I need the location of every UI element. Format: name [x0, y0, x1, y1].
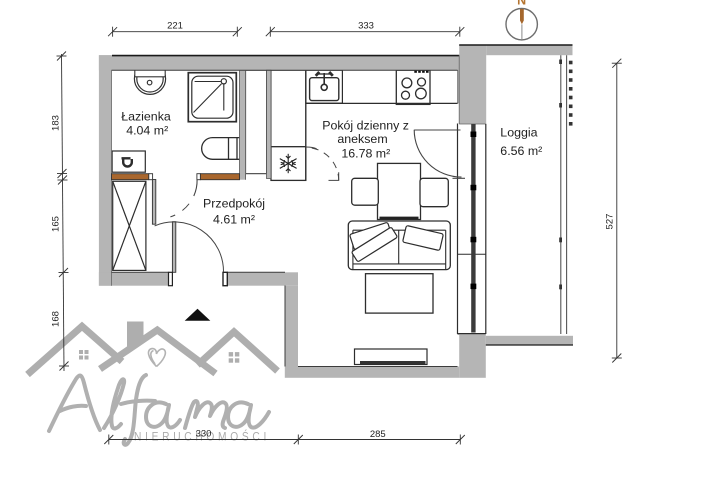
- svg-text:aneksem: aneksem: [337, 132, 387, 146]
- svg-text:Łazienka: Łazienka: [121, 110, 171, 124]
- svg-text:Przedpokój: Przedpokój: [203, 197, 265, 211]
- svg-text:4.04 m²: 4.04 m²: [126, 124, 168, 138]
- svg-text:330: 330: [196, 429, 212, 440]
- svg-text:165: 165: [51, 216, 62, 232]
- svg-text:183: 183: [51, 115, 62, 131]
- svg-text:16.78 m²: 16.78 m²: [341, 147, 390, 161]
- svg-text:285: 285: [370, 429, 386, 440]
- svg-text:Loggia: Loggia: [500, 126, 537, 140]
- svg-text:333: 333: [358, 21, 374, 32]
- svg-text:221: 221: [167, 21, 183, 32]
- svg-text:N: N: [517, 0, 526, 8]
- svg-text:4.61 m²: 4.61 m²: [213, 213, 255, 227]
- svg-text:527: 527: [605, 214, 616, 230]
- svg-text:Pokój dzienny z: Pokój dzienny z: [322, 119, 409, 133]
- svg-text:168: 168: [51, 311, 62, 327]
- svg-text:6.56 m²: 6.56 m²: [500, 144, 542, 158]
